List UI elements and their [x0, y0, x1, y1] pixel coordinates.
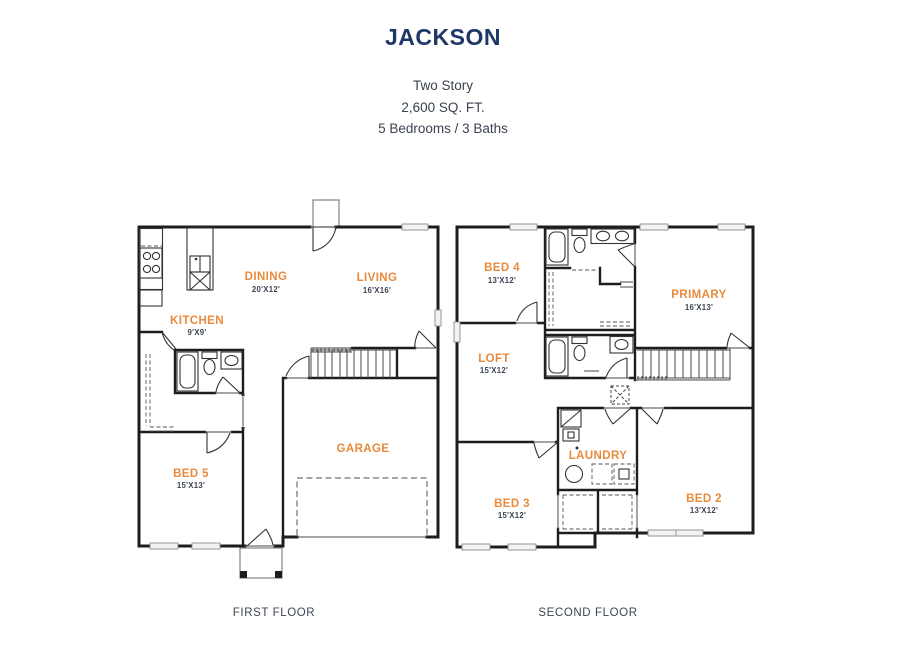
bath2-door [606, 358, 627, 378]
room-dims-bed5: 15'X13' [177, 481, 205, 490]
summary-beds-baths: 5 Bedrooms / 3 Baths [378, 118, 508, 140]
stairs [311, 348, 397, 378]
room-dims-bed3: 15'X12' [498, 511, 526, 520]
bed5-door [207, 432, 230, 453]
closet-shelving [549, 270, 630, 326]
room-dims-bed4: 13'X12' [488, 276, 516, 285]
bathtub-icon [177, 352, 198, 391]
garage-door [297, 478, 427, 535]
double-vanity [591, 229, 634, 244]
room-dims-living: 16'X16' [363, 286, 391, 295]
kitchen-door [162, 332, 176, 350]
dryer-icon [614, 464, 634, 484]
door-thresholds [205, 227, 436, 546]
plan-title: JACKSON [385, 24, 501, 51]
room-dims-primary: 16'X13' [685, 303, 713, 312]
front-door [313, 227, 336, 251]
toilet-icon [572, 229, 587, 253]
room-label-bed3: BED 3 [494, 498, 530, 510]
room-label-laundry: LAUNDRY [569, 450, 628, 462]
washer-icon [592, 464, 612, 484]
porch-post [240, 571, 247, 578]
floorplan-page: JACKSON Two Story 2,600 SQ. FT. 5 Bedroo… [0, 0, 900, 646]
water-heater-icon [566, 466, 583, 483]
primary-door [727, 333, 750, 348]
kitchen-counter [140, 229, 163, 290]
laundry-door [605, 408, 631, 424]
stairs [635, 348, 730, 380]
cased-opening [241, 395, 245, 428]
primary-bath-door [618, 244, 635, 267]
pantry [140, 290, 162, 306]
interior-walls [139, 332, 438, 546]
bed4-door [517, 302, 537, 323]
closet-shelving [146, 354, 175, 431]
room-label-bed2: BED 2 [686, 493, 722, 505]
bed2-door [641, 408, 663, 424]
room-label-kitchen: KITCHEN [170, 315, 224, 327]
closet-door [415, 331, 436, 348]
back-door [247, 529, 273, 546]
summary-sqft: 2,600 SQ. FT. [378, 97, 508, 119]
room-label-primary: PRIMARY [671, 289, 726, 301]
porch-post [275, 571, 282, 578]
bathtub-icon [546, 337, 568, 376]
garage-entry-door [286, 356, 309, 378]
room-label-garage: GARAGE [337, 443, 390, 455]
room-dims-bed2: 13'X12' [690, 506, 718, 515]
bed3-door [534, 442, 558, 458]
stove-icon [140, 248, 162, 278]
first-floor-caption: FIRST FLOOR [233, 607, 315, 619]
door-thresholds [515, 243, 750, 529]
sink-icon [616, 231, 629, 241]
toilet-icon [202, 352, 217, 375]
room-dims-kitchen: 9'X9' [187, 328, 206, 337]
second-floor-plan: BED 4 13'X12' PRIMARY 16'X13' LOFT 15'X1… [450, 195, 762, 560]
attic-access-icon [611, 386, 629, 404]
kitchen-island [187, 228, 213, 290]
summary-stories: Two Story [378, 75, 508, 97]
room-dims-loft: 15'X12' [480, 366, 508, 375]
room-dims-dining: 20'X12' [252, 285, 280, 294]
bath-door [216, 377, 240, 393]
room-label-bed4: BED 4 [484, 262, 520, 274]
front-porch [313, 200, 339, 227]
sink-icon [597, 231, 610, 241]
room-label-dining: DINING [245, 271, 288, 283]
toilet-icon [572, 337, 587, 361]
room-label-living: LIVING [357, 272, 398, 284]
sink-icon [221, 352, 242, 369]
room-label-loft: LOFT [478, 353, 510, 365]
first-floor-plan: KITCHEN 9'X9' DINING 20'X12' LIVING 16'X… [130, 195, 445, 590]
bathtub-icon [546, 229, 568, 265]
utility-sink-icon [561, 410, 581, 450]
plan-summary: Two Story 2,600 SQ. FT. 5 Bedrooms / 3 B… [378, 75, 508, 140]
room-label-bed5: BED 5 [173, 468, 209, 480]
sink-icon [584, 337, 633, 372]
back-porch [240, 548, 282, 578]
second-floor-caption: SECOND FLOOR [538, 607, 637, 619]
